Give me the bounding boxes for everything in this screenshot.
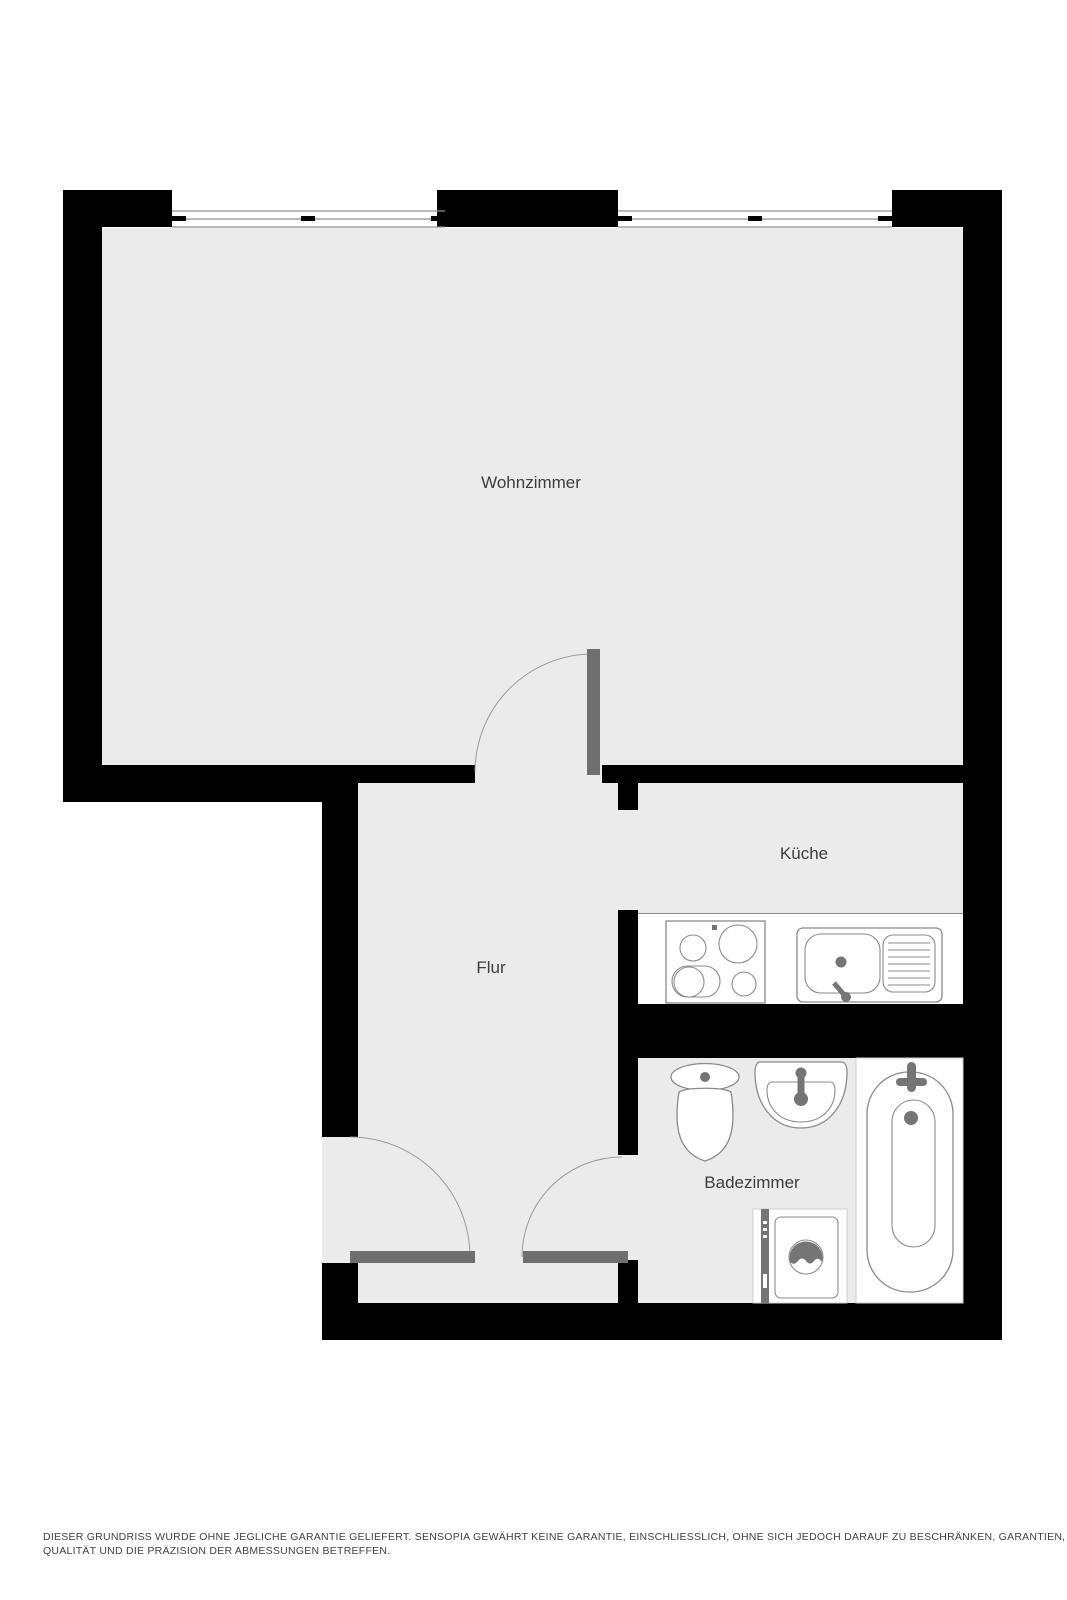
stove-control: [712, 925, 717, 930]
kitchen-sink-icon: [797, 928, 942, 1002]
window-center-mark: [748, 216, 762, 221]
window-right: [618, 211, 892, 227]
basin-faucet-stem: [798, 1073, 805, 1095]
wall-flur-left-upper: [322, 765, 358, 1137]
wall-top-middle-block: [437, 190, 618, 227]
room-label-flur: Flur: [476, 958, 505, 978]
floor-doorway-bad: [618, 1155, 638, 1260]
wall-left: [63, 190, 102, 802]
faucet-lever-knob: [841, 992, 851, 1002]
disclaimer-line-1: DIESER GRUNDRISS WURDE OHNE JEGLICHE GAR…: [43, 1531, 1067, 1545]
room-label-kueche: Küche: [780, 844, 828, 864]
window-tick: [172, 216, 186, 221]
disclaimer-line-2: QUALITÄT UND DIE PRÄZISION DER ABMESSUNG…: [43, 1545, 1067, 1559]
wall-wohnzimmer-bottom-left: [358, 765, 475, 783]
door-leaf: [587, 649, 600, 775]
disclaimer-text: DIESER GRUNDRISS WURDE OHNE JEGLICHE GAR…: [43, 1531, 1067, 1558]
faucet: [836, 957, 847, 968]
wall-kueche-left-stub: [618, 783, 638, 810]
washing-machine-icon: [753, 1209, 847, 1303]
toilet-flush-button: [700, 1072, 710, 1082]
wall-kueche-left-mid: [618, 910, 638, 1004]
floor-flur: [358, 783, 618, 1303]
floor-plan-page: Wohnzimmer Küche Flur Badezimmer DIESER …: [0, 0, 1067, 1600]
window-tick: [878, 216, 892, 221]
wall-wohnzimmer-bottom-exterior: [63, 765, 322, 802]
wall-kueche-bad-divider: [618, 1004, 963, 1058]
wall-top-right-block: [892, 190, 1002, 227]
wall-bottom: [322, 1303, 1002, 1340]
wall-wohnzimmer-bottom-right: [602, 765, 963, 783]
wall-bad-left-lower: [618, 1260, 638, 1303]
floor-doorway-wohnzimmer: [475, 765, 602, 783]
floor-wohnzimmer: [102, 228, 963, 765]
tub-drain: [904, 1111, 918, 1125]
wall-right: [963, 227, 1002, 1340]
door-leaf: [350, 1251, 475, 1263]
window-tick: [618, 216, 632, 221]
door-leaf: [523, 1251, 628, 1263]
bathtub-icon: [856, 1058, 963, 1303]
room-label-wohnzimmer: Wohnzimmer: [481, 473, 581, 493]
floor-passage-kueche: [618, 810, 638, 910]
basin-faucet-knob: [794, 1092, 808, 1106]
window-center-mark: [301, 216, 315, 221]
floor-plan-drawing: [0, 0, 1067, 1600]
tub-outer: [867, 1072, 953, 1292]
window-tick: [431, 216, 445, 221]
floor-doorway-entrance: [322, 1137, 358, 1263]
tub-faucet-handle: [896, 1078, 927, 1086]
stove-icon: [666, 921, 765, 1003]
room-label-badezimmer: Badezimmer: [704, 1173, 799, 1193]
wall-bad-left-upper: [618, 1058, 638, 1155]
tub-faucet: [907, 1062, 916, 1092]
window-left: [172, 211, 445, 227]
